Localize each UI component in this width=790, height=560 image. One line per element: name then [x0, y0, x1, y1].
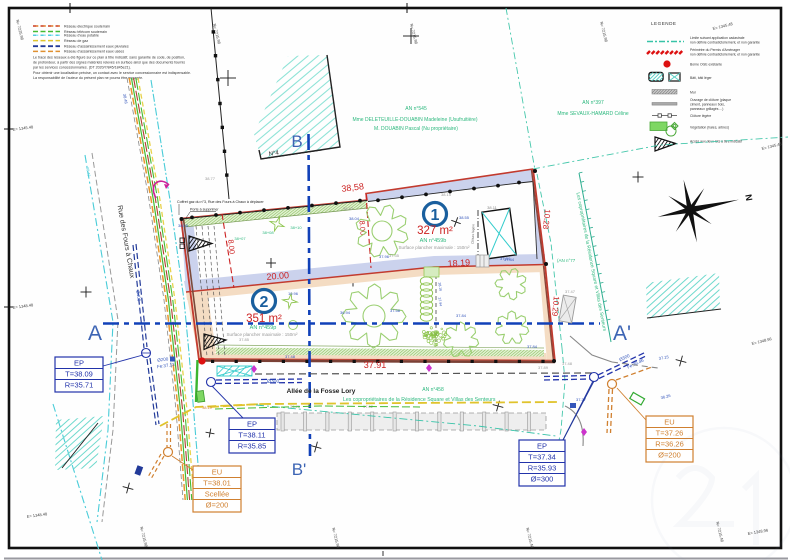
svg-text:R=35.85: R=35.85 — [238, 442, 267, 451]
svg-text:Mme SEVAUX-HAMARD Céline: Mme SEVAUX-HAMARD Céline — [557, 111, 629, 117]
svg-text:38+08: 38+08 — [262, 230, 274, 235]
svg-text:38.43: 38.43 — [343, 206, 354, 211]
svg-text:Réseau d'assainissement eaux p: Réseau d'assainissement eaux pluviales — [64, 45, 129, 49]
svg-text:T=38.11: T=38.11 — [238, 431, 265, 440]
svg-text:38.77: 38.77 — [205, 176, 216, 181]
svg-text:37.85: 37.85 — [239, 337, 250, 342]
svg-text:EU: EU — [212, 468, 222, 477]
svg-text:AN n°458: AN n°458 — [422, 387, 444, 393]
svg-text:2: 2 — [260, 294, 269, 311]
svg-text:Mur: Mur — [690, 91, 697, 95]
svg-text:10.29: 10.29 — [550, 296, 561, 317]
svg-text:ciment, panneaux bois,: ciment, panneaux bois, — [690, 103, 725, 107]
svg-text:AN n°545: AN n°545 — [405, 106, 427, 112]
svg-text:Ouvrage de clôture (plaque: Ouvrage de clôture (plaque — [690, 98, 731, 102]
svg-text:37.58: 37.58 — [390, 308, 401, 313]
svg-text:327 m²: 327 m² — [417, 225, 453, 237]
svg-text:Ø300: Ø300 — [267, 379, 279, 385]
svg-text:37.48: 37.48 — [285, 354, 296, 359]
svg-text:EP: EP — [74, 359, 84, 368]
svg-text:B': B' — [292, 460, 307, 479]
svg-text:T=37.26: T=37.26 — [656, 429, 684, 438]
svg-text:par les services concessionnai: par les services concessionnaires. (DT 2… — [33, 66, 131, 70]
svg-text:A': A' — [613, 322, 631, 345]
svg-text:EP: EP — [537, 442, 547, 451]
svg-text:AN n°459p: AN n°459p — [250, 325, 277, 331]
svg-text:37.84: 37.84 — [456, 313, 467, 318]
svg-text:Porte à supprimer: Porte à supprimer — [190, 208, 219, 212]
svg-text:Clôture légère: Clôture légère — [690, 114, 711, 118]
svg-text:LEGENDE: LEGENDE — [651, 21, 676, 26]
svg-text:Réseau d'assainissement eaux u: Réseau d'assainissement eaux usées — [64, 50, 124, 54]
svg-text:19.96: 19.96 — [288, 291, 299, 296]
svg-text:de profondeur, à partir des si: de profondeur, à partir des signes matér… — [33, 61, 185, 65]
svg-text:Borne OGE existante: Borne OGE existante — [690, 63, 722, 67]
svg-text:non définie contradictoirement: non définie contradictoirement, et non g… — [690, 53, 760, 57]
svg-text:Réseau d'eau potable: Réseau d'eau potable — [64, 34, 99, 38]
svg-text:(AN n°77: (AN n°77 — [557, 258, 576, 263]
svg-text:38+10: 38+10 — [290, 225, 302, 230]
svg-text:36.94: 36.94 — [340, 310, 351, 315]
svg-text:R=35.93: R=35.93 — [528, 464, 557, 473]
svg-text:panneaux grillagés ...): panneaux grillagés ...) — [690, 107, 723, 111]
svg-text:38.55: 38.55 — [459, 215, 470, 220]
svg-text:AN n°459b: AN n°459b — [420, 238, 447, 244]
svg-text:La responsabilité de l'auteur: La responsabilité de l'auteur du présent… — [33, 76, 143, 80]
svg-text:37.91: 37.91 — [364, 360, 387, 370]
svg-text:R=35.71: R=35.71 — [65, 381, 94, 390]
svg-text:37.35: 37.35 — [389, 253, 400, 258]
svg-text:Mme DELETEUILLE-DOUABIN Madele: Mme DELETEUILLE-DOUABIN Madeleine (Usufr… — [352, 117, 477, 123]
svg-text:Allée de la Fosse Lory: Allée de la Fosse Lory — [287, 388, 356, 395]
svg-text:38.08: 38.08 — [178, 223, 189, 228]
svg-text:Végétation (haies, arbres): Végétation (haies, arbres) — [690, 126, 729, 130]
svg-text:Limite suivant application cad: Limite suivant application cadastrale — [690, 36, 745, 40]
svg-text:Réseau de gaz: Réseau de gaz — [64, 39, 88, 43]
svg-text:Clôture légère: Clôture légère — [471, 224, 476, 244]
svg-text:38.15: 38.15 — [441, 192, 452, 197]
svg-text:AN n°397: AN n°397 — [582, 100, 604, 106]
svg-text:EU: EU — [664, 418, 674, 427]
svg-text:1: 1 — [431, 207, 440, 224]
svg-text:37.89: 37.89 — [538, 365, 549, 370]
svg-text:351 m²: 351 m² — [246, 313, 282, 325]
svg-text:B: B — [291, 132, 302, 151]
svg-text:Périmètre du Permis d'Aménager: Périmètre du Permis d'Aménager — [690, 48, 741, 52]
svg-text:T=38.09: T=38.09 — [65, 370, 93, 379]
svg-text:Surface plancher maximale : 15: Surface plancher maximale : 150m² — [226, 332, 298, 337]
svg-text:Scellée: Scellée — [205, 490, 230, 499]
svg-text:non définie contradictoirement: non définie contradictoirement, et non g… — [690, 41, 760, 45]
svg-text:37.84: 37.84 — [500, 256, 511, 261]
svg-text:37.84: 37.84 — [527, 344, 538, 349]
svg-text:Réseau électrique souterrain: Réseau électrique souterrain — [64, 24, 110, 28]
svg-text:20.00: 20.00 — [266, 270, 289, 282]
svg-text:38+07: 38+07 — [234, 236, 246, 241]
svg-text:EP: EP — [247, 420, 257, 429]
svg-text:38.04: 38.04 — [349, 216, 360, 221]
svg-text:A: A — [88, 322, 102, 345]
svg-text:M. DOUABIN Pascal (Nu propriét: M. DOUABIN Pascal (Nu propriétaire) — [374, 126, 458, 132]
svg-text:Pour obtenir une localisation: Pour obtenir une localisation précise, u… — [33, 71, 191, 75]
svg-text:Ø=300: Ø=300 — [531, 475, 554, 484]
svg-text:Le tracé des réseaux a été fig: Le tracé des réseaux a été figuré sur ce… — [33, 56, 185, 60]
svg-text:Surface plancher maximale : 15: Surface plancher maximale : 150m² — [398, 245, 470, 250]
svg-text:T=38.01: T=38.01 — [203, 479, 231, 488]
svg-text:Ø=200: Ø=200 — [206, 501, 229, 510]
svg-text:37.47: 37.47 — [565, 289, 576, 294]
svg-text:T=37.34: T=37.34 — [528, 453, 556, 462]
svg-text:38.10: 38.10 — [202, 406, 212, 410]
svg-text:37.96: 37.96 — [379, 254, 390, 259]
svg-text:Coffret gaz du n°3, Rue des Fo: Coffret gaz du n°3, Rue des Fours à Chau… — [177, 200, 264, 204]
svg-text:Bâti, bâti léger: Bâti, bâti léger — [690, 76, 713, 80]
svg-text:8.00: 8.00 — [226, 239, 236, 254]
svg-text:37.48: 37.48 — [562, 361, 573, 366]
svg-text:18.19: 18.19 — [447, 257, 470, 268]
svg-text:38.11: 38.11 — [487, 205, 497, 210]
